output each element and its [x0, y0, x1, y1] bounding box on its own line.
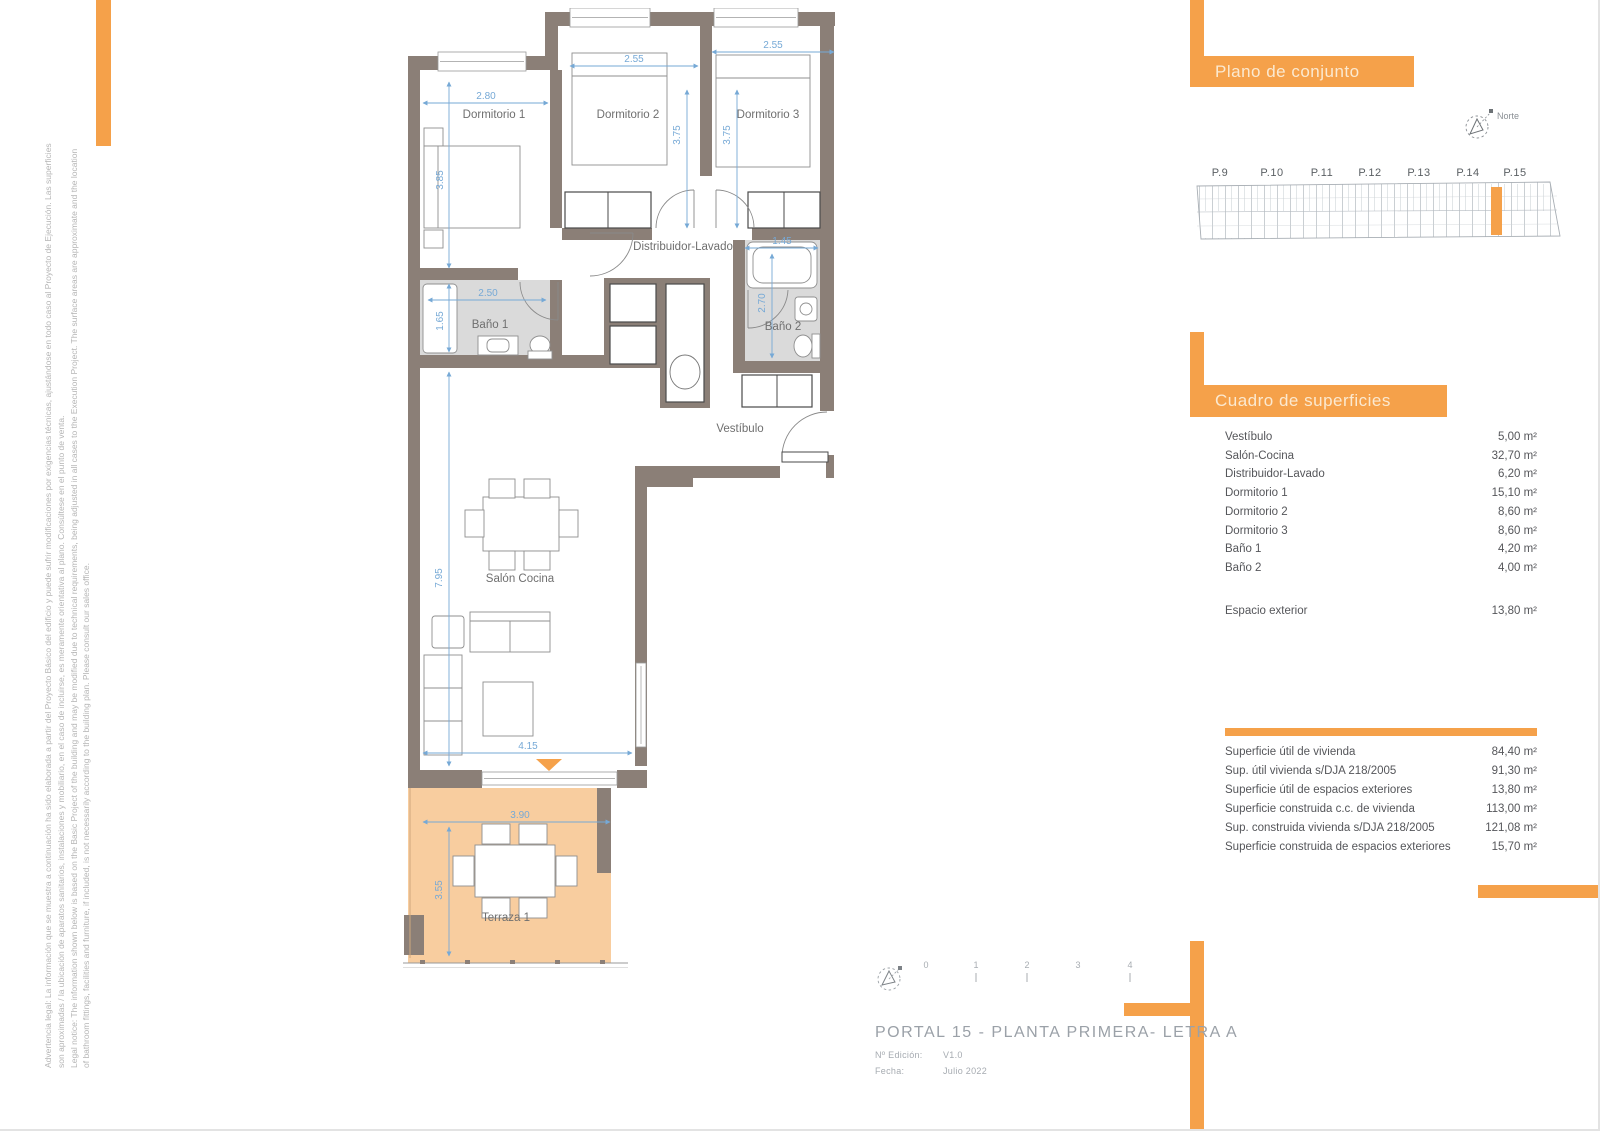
portal-label: P.12 [1358, 167, 1381, 179]
floor-plan: 2.80 3.85 2.55 3.75 2.55 3.75 1.45 2.70 … [400, 8, 840, 968]
scale-number: 2 [1024, 960, 1029, 970]
portal-label: P.11 [1311, 167, 1333, 179]
date-label: Fecha: [875, 1066, 904, 1076]
compass-pointer-tip [1489, 109, 1493, 113]
terrace-access-marker [536, 759, 562, 771]
summary-row: Sup. útil vivienda s/DJA 218/200591,30 m… [1225, 762, 1537, 781]
surface-value: 15,10 m² [1492, 484, 1537, 503]
shower-tray [670, 355, 700, 389]
surface-label: Dormitorio 2 [1225, 503, 1288, 522]
scale-number: 0 [923, 960, 928, 970]
surface-row: Vestíbulo5,00 m² [1225, 428, 1537, 447]
edition-value: V1.0 [943, 1050, 963, 1060]
site-plan-title: Plano de conjunto [1215, 62, 1360, 82]
disclaimer-line: of bathroom fittings, facilities and fur… [80, 63, 93, 1068]
room-label-dormitorio1: Dormitorio 1 [463, 109, 526, 121]
compass-needle-icon [1470, 119, 1483, 134]
compass-pointer [1477, 112, 1491, 127]
surfaces-table: Vestíbulo5,00 m² Salón-Cocina32,70 m² Di… [1225, 428, 1537, 620]
edition-label: Nº Edición: [875, 1050, 923, 1060]
surface-value: 32,70 m² [1492, 447, 1537, 466]
surface-value: 4,20 m² [1498, 540, 1537, 559]
room-label-vestibulo: Vestíbulo [716, 423, 763, 435]
scale-bar-group: 0 1 2 3 4 [850, 940, 1150, 1000]
summary-value: 84,40 m² [1492, 743, 1537, 762]
scale-number: 3 [1075, 960, 1080, 970]
entry-door-leaf [782, 452, 828, 462]
disclaimer-line: son aproximadas / la ubicación de aparat… [55, 63, 68, 1068]
summary-table: Superficie útil de vivienda84,40 m² Sup.… [1225, 728, 1537, 857]
surface-label: Espacio exterior [1225, 602, 1307, 621]
portal-label: P.9 [1212, 167, 1229, 179]
surface-value: 13,80 m² [1492, 602, 1537, 621]
summary-label: Superficie construida c.c. de vivienda [1225, 800, 1415, 819]
room-label-bano2: Baño 2 [765, 321, 801, 333]
north-compass-site: Norte [1425, 98, 1545, 148]
disclaimer-line: Advertencia legal: La información que se… [42, 63, 55, 1068]
scale-number: 4 [1127, 960, 1132, 970]
accent-bar-surfaces-title [1190, 332, 1204, 386]
dim-label: 7.95 [434, 568, 445, 588]
summary-label: Sup. construida vivienda s/DJA 218/2005 [1225, 819, 1435, 838]
summary-value: 15,70 m² [1492, 838, 1537, 857]
surface-row-exterior: Espacio exterior13,80 m² [1225, 602, 1537, 621]
accent-bar-bottom-stub [1124, 1003, 1190, 1016]
portal-label: P.14 [1456, 167, 1479, 179]
accent-bar-site-title [1190, 0, 1204, 57]
surface-value: 4,00 m² [1498, 559, 1537, 578]
room-label-dormitorio2: Dormitorio 2 [597, 109, 660, 121]
surfaces-title: Cuadro de superficies [1215, 391, 1391, 411]
accent-bar-top-left [96, 0, 111, 146]
summary-value: 91,30 m² [1492, 762, 1537, 781]
surfaces-banner: Cuadro de superficies [1190, 385, 1447, 417]
scale-number: 1 [973, 960, 978, 970]
summary-label: Superficie útil de vivienda [1225, 743, 1355, 762]
scale-ticks: 0 1 2 3 4 [923, 960, 1132, 982]
date-value: Julio 2022 [943, 1066, 987, 1076]
dim-label: 2.50 [478, 288, 498, 299]
surface-row: Dormitorio 38,60 m² [1225, 522, 1537, 541]
dim-label: 1.45 [772, 236, 792, 247]
surface-value: 6,20 m² [1498, 465, 1537, 484]
summary-value: 121,08 m² [1485, 819, 1537, 838]
accent-bar-right-edge [1478, 885, 1600, 898]
compass-pointer-tip [898, 966, 902, 970]
north-label: Norte [1497, 111, 1519, 121]
site-plan-banner: Plano de conjunto [1190, 56, 1414, 87]
surface-label: Distribuidor-Lavado [1225, 465, 1325, 484]
surface-label: Baño 2 [1225, 559, 1261, 578]
summary-row: Superficie útil de espacios exteriores13… [1225, 781, 1537, 800]
surface-value: 8,60 m² [1498, 503, 1537, 522]
room-label-dormitorio3: Dormitorio 3 [737, 109, 800, 121]
disclaimer-line: Legal notice: The information shown belo… [68, 63, 81, 1068]
surface-row: Baño 24,00 m² [1225, 559, 1537, 578]
surface-label: Dormitorio 3 [1225, 522, 1288, 541]
dim-label: 2.55 [763, 40, 783, 51]
surface-row: Distribuidor-Lavado6,20 m² [1225, 465, 1537, 484]
sheet-title: PORTAL 15 - PLANTA PRIMERA- LETRA A [875, 1024, 1238, 1042]
compass-needle-icon [882, 971, 895, 985]
summary-rule [1225, 728, 1537, 736]
summary-row: Sup. construida vivienda s/DJA 218/20051… [1225, 819, 1537, 838]
summary-row: Superficie útil de vivienda84,40 m² [1225, 743, 1537, 762]
dim-label: 3.85 [435, 170, 446, 190]
room-label-bano1: Baño 1 [472, 319, 508, 331]
dim-label: 2.70 [757, 293, 768, 313]
highlighted-unit [1491, 187, 1502, 235]
room-label-terraza: Terraza 1 [482, 912, 530, 924]
room-label-distribuidor: Distribuidor-Lavado [633, 241, 733, 253]
surface-label: Baño 1 [1225, 540, 1261, 559]
dim-label: 2.55 [624, 54, 644, 65]
portal-label: P.10 [1260, 167, 1283, 179]
portal-labels: P.9 P.10 P.11 P.12 P.13 P.14 P.15 [1212, 167, 1527, 179]
dim-label: 3.75 [672, 125, 683, 145]
portal-label: P.15 [1503, 167, 1526, 179]
surface-row: Dormitorio 115,10 m² [1225, 484, 1537, 503]
surface-row: Dormitorio 28,60 m² [1225, 503, 1537, 522]
summary-row: Superficie construida c.c. de vivienda11… [1225, 800, 1537, 819]
surface-label: Vestíbulo [1225, 428, 1272, 447]
summary-value: 13,80 m² [1492, 781, 1537, 800]
floorplan-sheet: Advertencia legal: La información que se… [0, 0, 1600, 1131]
surface-label: Salón-Cocina [1225, 447, 1294, 466]
surface-label: Dormitorio 1 [1225, 484, 1288, 503]
surface-row: Baño 14,20 m² [1225, 540, 1537, 559]
dim-label: 4.15 [518, 741, 538, 752]
summary-label: Superficie útil de espacios exteriores [1225, 781, 1412, 800]
surface-row: Salón-Cocina32,70 m² [1225, 447, 1537, 466]
surface-value: 5,00 m² [1498, 428, 1537, 447]
summary-row: Superficie construida de espacios exteri… [1225, 838, 1537, 857]
dim-label: 1.65 [435, 311, 446, 331]
dim-label: 2.80 [476, 91, 496, 102]
surface-value: 8,60 m² [1498, 522, 1537, 541]
buildings-outline [1197, 182, 1560, 239]
dim-label: 3.55 [434, 880, 445, 900]
summary-label: Superficie construida de espacios exteri… [1225, 838, 1451, 857]
site-plan-drawing: P.9 P.10 P.11 P.12 P.13 P.14 P.15 [1185, 158, 1565, 250]
dim-label: 3.90 [510, 810, 530, 821]
legal-disclaimer: Advertencia legal: La información que se… [42, 63, 93, 1068]
summary-label: Sup. útil vivienda s/DJA 218/2005 [1225, 762, 1396, 781]
summary-value: 113,00 m² [1486, 800, 1537, 819]
portal-label: P.13 [1407, 167, 1430, 179]
dim-label: 3.75 [722, 125, 733, 145]
room-label-salon: Salón Cocina [486, 573, 555, 585]
